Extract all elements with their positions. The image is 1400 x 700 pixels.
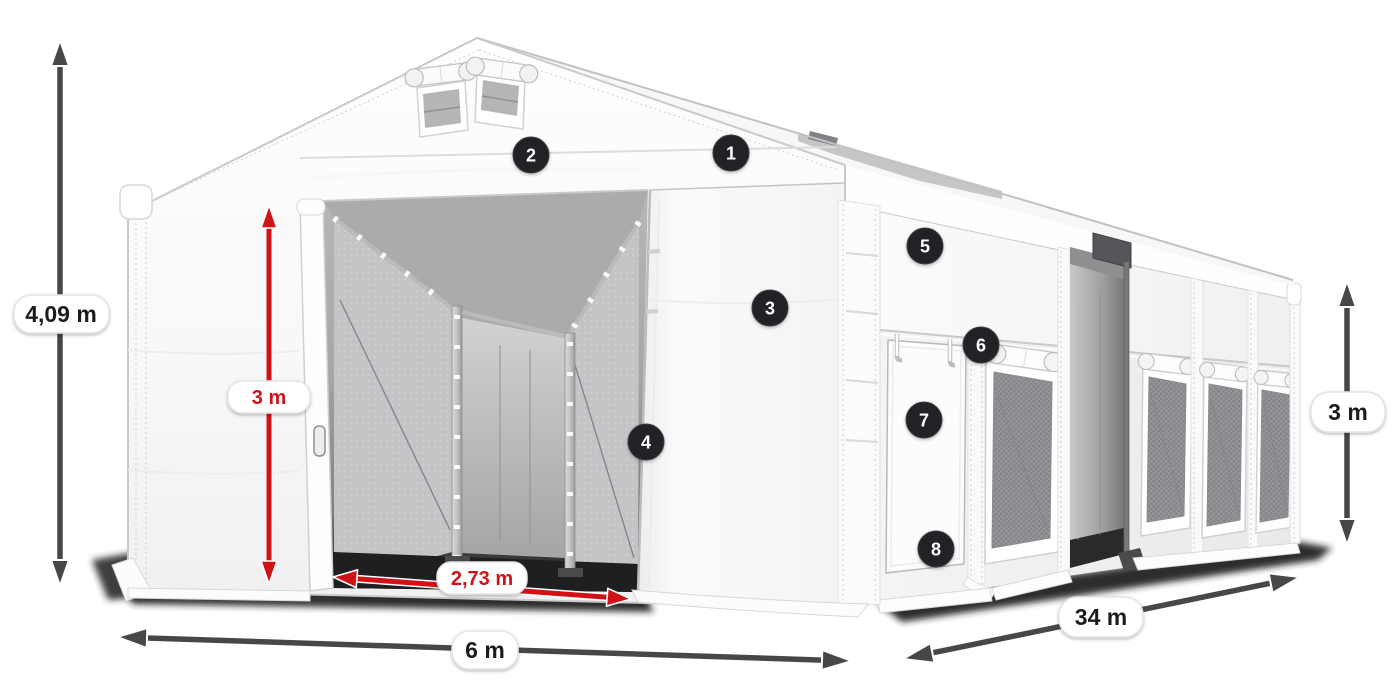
arrowhead-up [1338,281,1356,307]
marker-6: 6 [963,327,999,363]
marker-4: 4 [628,424,664,460]
marker-7-number: 7 [919,411,929,431]
door-height-value: 3 m [252,387,286,409]
front-width-label: 6 m [452,631,518,669]
marker-8-number: 8 [931,540,941,560]
wall-pillar [1058,247,1070,578]
tent-dimension-diagram: 4,09 m 3 m 2,73 m 6 m 34 m 3 m 1 2 3 [0,0,1400,700]
marker-8: 8 [918,531,954,567]
marker-4-number: 4 [641,433,651,453]
total-height-value: 4,09 m [25,301,97,327]
marker-1-number: 1 [726,144,736,164]
total-height-label: 4,09 m [14,295,109,333]
side-height-label: 3 m [1311,392,1385,432]
interior-far-view [462,318,565,558]
pole-base [558,568,583,577]
front-doorway [323,190,648,592]
arrowhead-right [1269,573,1300,593]
marker-5: 5 [907,228,943,264]
door-handle [314,426,325,456]
marker-5-number: 5 [920,237,930,257]
side-height-value: 3 m [1328,399,1368,425]
marker-6-number: 6 [976,336,986,356]
marker-2: 2 [513,137,549,173]
side-window-1 [985,343,1064,564]
arrowhead-up [51,40,69,66]
marker-3: 3 [752,290,788,326]
marker-1: 1 [713,135,749,171]
arrowhead-left [903,643,934,663]
side-window-3 [1199,361,1251,538]
front-width-value: 6 m [465,637,505,663]
side-length-value: 34 m [1075,604,1127,630]
arrowhead-down [1338,519,1356,545]
door-width-value: 2,73 m [451,568,513,590]
side-window-2 [1137,353,1197,536]
front-right-door-panel [638,183,845,608]
side-wall [836,158,1301,613]
entrance-pole [1124,262,1129,553]
arrowhead-right [822,650,852,670]
side-length-label: 34 m [1059,597,1143,637]
marker-3-number: 3 [765,299,775,319]
marker-2-number: 2 [526,146,536,166]
arrowhead-left [117,628,147,648]
marker-7: 7 [906,402,942,438]
door-height-label: 3 m [228,381,310,413]
door-width-label: 2,73 m [437,562,527,594]
tent-illustration: 4,09 m 3 m 2,73 m 6 m 34 m 3 m 1 2 3 [0,0,1400,700]
front-corner-band [838,200,880,608]
arrowhead-down [51,560,69,586]
wall-pillar [1191,278,1203,558]
vent-window-mesh [423,89,461,128]
vent-window-mesh [481,80,519,116]
eave-corner-left [120,185,152,219]
